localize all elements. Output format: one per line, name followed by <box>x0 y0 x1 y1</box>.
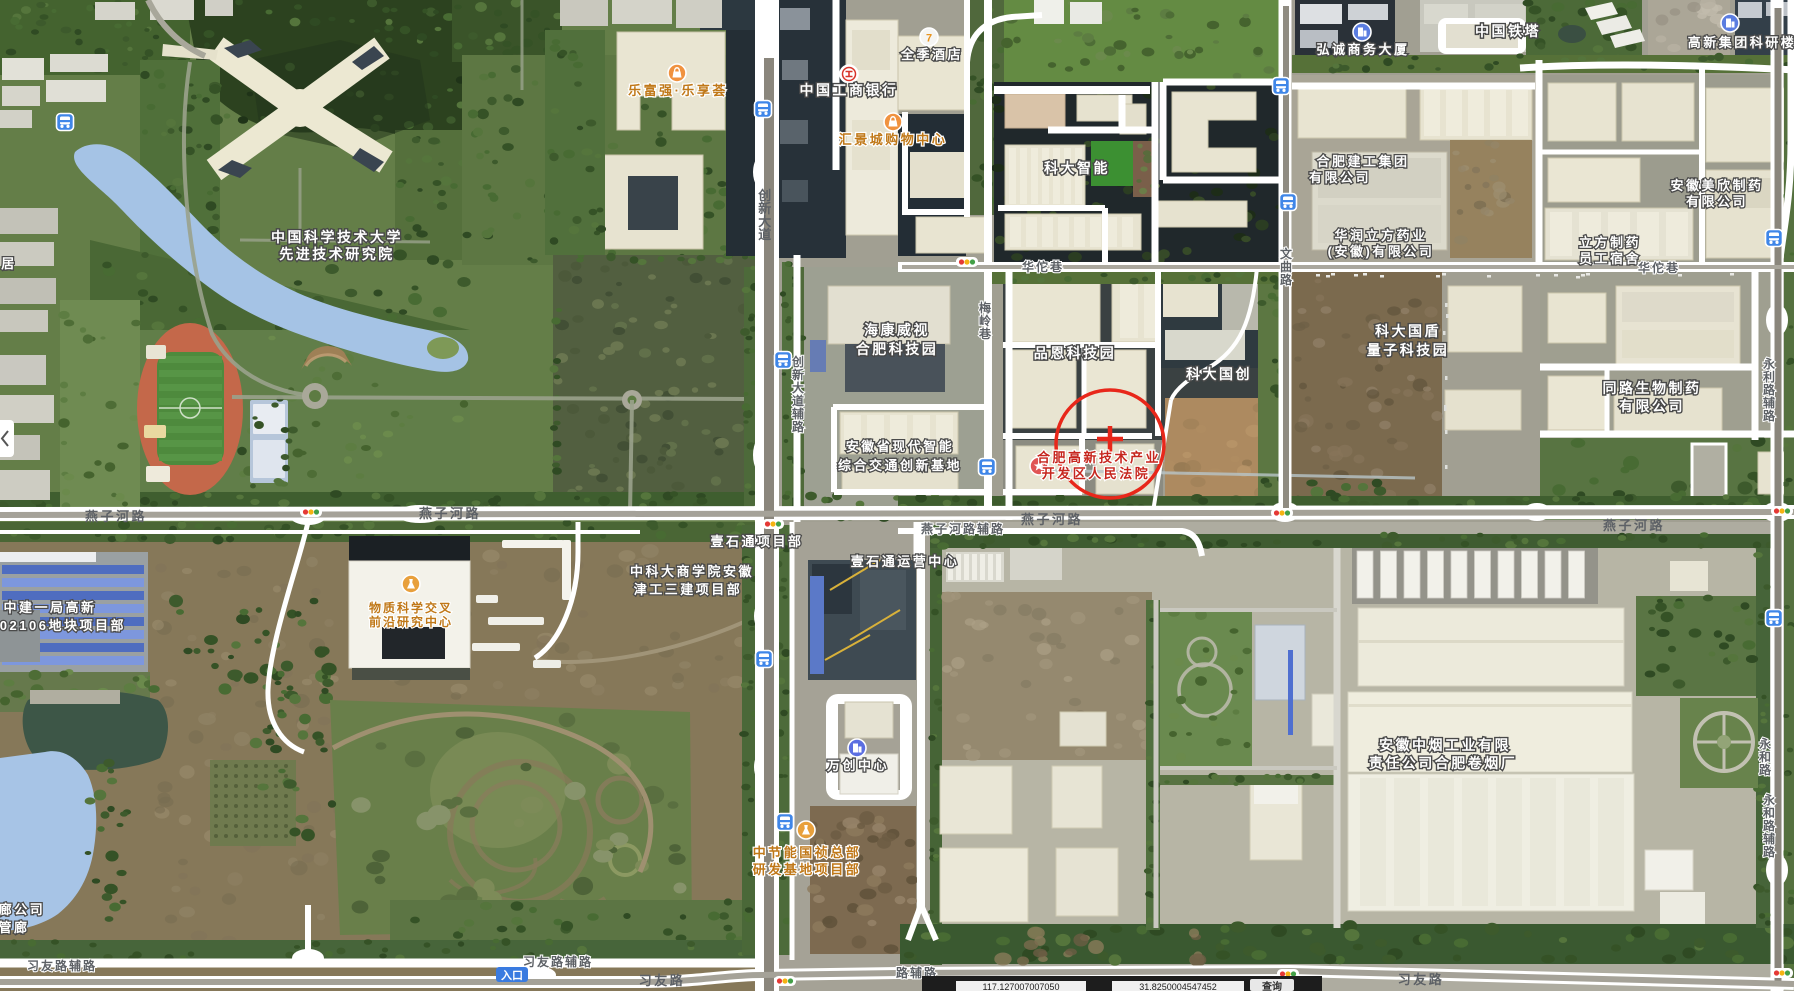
svg-text:华润立方药业: 华润立方药业 <box>1334 228 1427 243</box>
svg-text:查询: 查询 <box>1261 980 1282 991</box>
svg-text:科大国盾: 科大国盾 <box>1375 323 1441 339</box>
svg-text:永和路: 永和路 <box>1758 736 1773 777</box>
svg-text:梅岭巷: 梅岭巷 <box>978 300 993 341</box>
svg-text:物质科学交叉: 物质科学交叉 <box>369 600 453 615</box>
svg-text:开发区人民法院: 开发区人民法院 <box>1042 466 1151 481</box>
svg-text:全季酒店: 全季酒店 <box>900 47 963 62</box>
svg-text:永利路辅路: 永利路辅路 <box>1762 356 1777 423</box>
svg-text:居: 居 <box>1 256 17 271</box>
svg-text:华佗巷: 华佗巷 <box>1638 260 1680 275</box>
svg-text:品恩科技园: 品恩科技园 <box>1034 345 1117 361</box>
svg-text:燕子河路: 燕子河路 <box>1603 518 1665 533</box>
svg-text:创新大道: 创新大道 <box>757 188 774 242</box>
svg-text:中国工商银行: 中国工商银行 <box>800 82 899 98</box>
svg-text:中科大商学院安徽: 中科大商学院安徽 <box>630 564 754 579</box>
svg-text:中建一局高新: 中建一局高新 <box>3 600 96 615</box>
svg-text:壹石通项目部: 壹石通项目部 <box>710 534 803 549</box>
svg-text:先进技术研究院: 先进技术研究院 <box>279 246 395 262</box>
svg-text:入口: 入口 <box>501 969 523 982</box>
svg-text:31.8250004547452: 31.8250004547452 <box>1139 982 1217 991</box>
svg-text:合肥科技园: 合肥科技园 <box>856 341 939 357</box>
svg-text:创新大道辅路: 创新大道辅路 <box>791 354 806 434</box>
svg-text:同路生物制药: 同路生物制药 <box>1603 380 1702 396</box>
svg-text:津工三建项目部: 津工三建项目部 <box>634 582 743 597</box>
svg-text:有限公司: 有限公司 <box>1309 170 1371 185</box>
svg-text:习友路辅路: 习友路辅路 <box>523 954 593 969</box>
svg-text:责任公司合肥卷烟厂: 责任公司合肥卷烟厂 <box>1369 755 1518 771</box>
svg-text:海康威视: 海康威视 <box>864 322 930 338</box>
svg-text:有限公司: 有限公司 <box>1686 194 1748 209</box>
svg-text:117.127007007050: 117.127007007050 <box>983 982 1060 991</box>
svg-text:燕子河路: 燕子河路 <box>419 506 481 521</box>
svg-text:汇景城购物中心: 汇景城购物中心 <box>839 132 948 147</box>
svg-text:中国铁塔: 中国铁塔 <box>1475 23 1541 39</box>
svg-text:中节能国祯总部: 中节能国祯总部 <box>753 845 862 860</box>
svg-text:燕子河路辅路: 燕子河路辅路 <box>921 521 1005 536</box>
svg-text:安徽美欣制药: 安徽美欣制药 <box>1670 178 1763 193</box>
svg-text:管廊: 管廊 <box>0 920 30 935</box>
svg-text:华佗巷: 华佗巷 <box>1022 259 1064 274</box>
svg-text:前沿研究中心: 前沿研究中心 <box>369 614 453 629</box>
svg-text:习友路辅路: 习友路辅路 <box>27 958 97 973</box>
svg-text:合肥高新技术产业: 合肥高新技术产业 <box>1037 450 1161 465</box>
svg-text:202106地块项目部: 202106地块项目部 <box>0 618 126 633</box>
svg-text:弘诚商务大厦: 弘诚商务大厦 <box>1316 42 1409 57</box>
svg-text:廊公司: 廊公司 <box>0 902 45 917</box>
svg-text:文曲路: 文曲路 <box>1280 246 1294 287</box>
svg-text:万创中心: 万创中心 <box>826 758 889 773</box>
svg-text:高新集团科研楼: 高新集团科研楼 <box>1688 35 1794 50</box>
svg-text:有限公司: 有限公司 <box>1619 398 1685 414</box>
svg-text:综合交通创新基地: 综合交通创新基地 <box>838 458 962 473</box>
svg-text:科大国创: 科大国创 <box>1186 366 1252 382</box>
svg-text:(安徽)有限公司: (安徽)有限公司 <box>1328 244 1435 259</box>
svg-text:燕子河路: 燕子河路 <box>85 509 147 524</box>
svg-text:科大智能: 科大智能 <box>1044 160 1110 176</box>
svg-text:中国科学技术大学: 中国科学技术大学 <box>271 229 403 245</box>
svg-text:永和路辅路: 永和路辅路 <box>1762 792 1777 859</box>
svg-text:安徽省现代智能: 安徽省现代智能 <box>846 439 955 454</box>
svg-text:量子科技园: 量子科技园 <box>1367 342 1450 358</box>
svg-text:安徽中烟工业有限: 安徽中烟工业有限 <box>1379 737 1511 753</box>
svg-text:研发基地项目部: 研发基地项目部 <box>753 862 862 877</box>
svg-text:员工宿舍: 员工宿舍 <box>1579 251 1641 266</box>
svg-text:燕子河路: 燕子河路 <box>1021 512 1083 527</box>
svg-text:合肥建工集团: 合肥建工集团 <box>1316 154 1409 169</box>
svg-text:立方制药: 立方制药 <box>1579 235 1641 250</box>
svg-text:习友路: 习友路 <box>639 973 686 988</box>
svg-text:乐富强·乐享荟: 乐富强·乐享荟 <box>628 83 728 98</box>
svg-text:7: 7 <box>926 33 932 45</box>
svg-text:习友路: 习友路 <box>1398 972 1445 987</box>
svg-text:壹石通运营中心: 壹石通运营中心 <box>851 554 960 569</box>
